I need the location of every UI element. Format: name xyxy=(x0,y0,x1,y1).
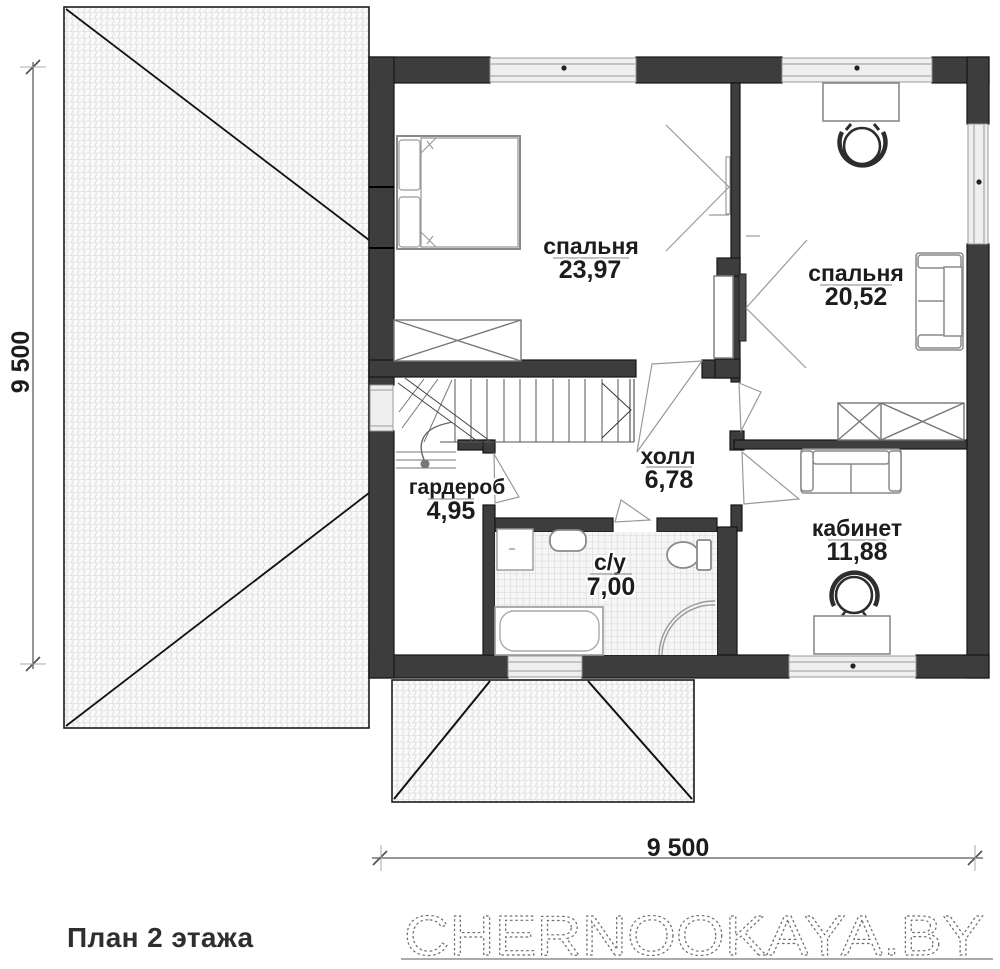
svg-text:4,95: 4,95 xyxy=(427,497,476,525)
svg-text:6,78: 6,78 xyxy=(645,466,694,494)
svg-text:гардероб: гардероб xyxy=(409,476,505,499)
svg-text:7,00: 7,00 xyxy=(587,573,636,601)
svg-text:с/у: с/у xyxy=(594,549,626,575)
svg-text:23,97: 23,97 xyxy=(559,256,622,284)
svg-text:План 2 этажа: План 2 этажа xyxy=(67,922,253,953)
svg-text:20,52: 20,52 xyxy=(825,283,888,311)
svg-text:9 500: 9 500 xyxy=(647,834,710,862)
svg-text:11,88: 11,88 xyxy=(826,538,887,566)
svg-text:9 500: 9 500 xyxy=(7,331,35,394)
